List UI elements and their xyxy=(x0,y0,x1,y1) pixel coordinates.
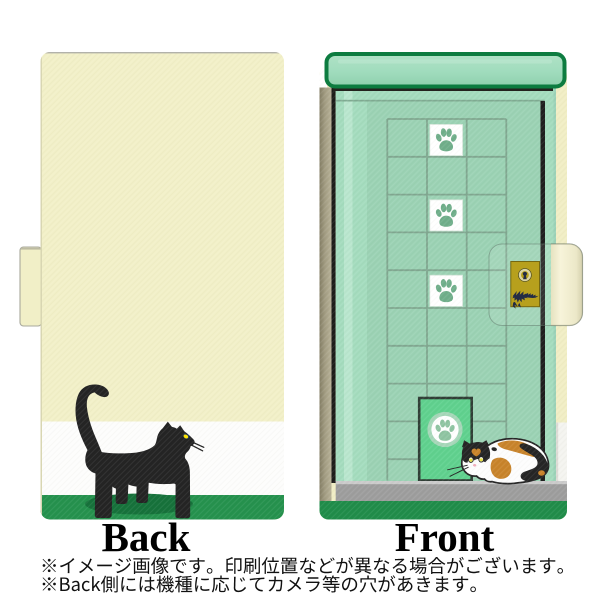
svg-text:Front: Front xyxy=(395,514,495,560)
svg-text:Back: Back xyxy=(102,514,191,560)
